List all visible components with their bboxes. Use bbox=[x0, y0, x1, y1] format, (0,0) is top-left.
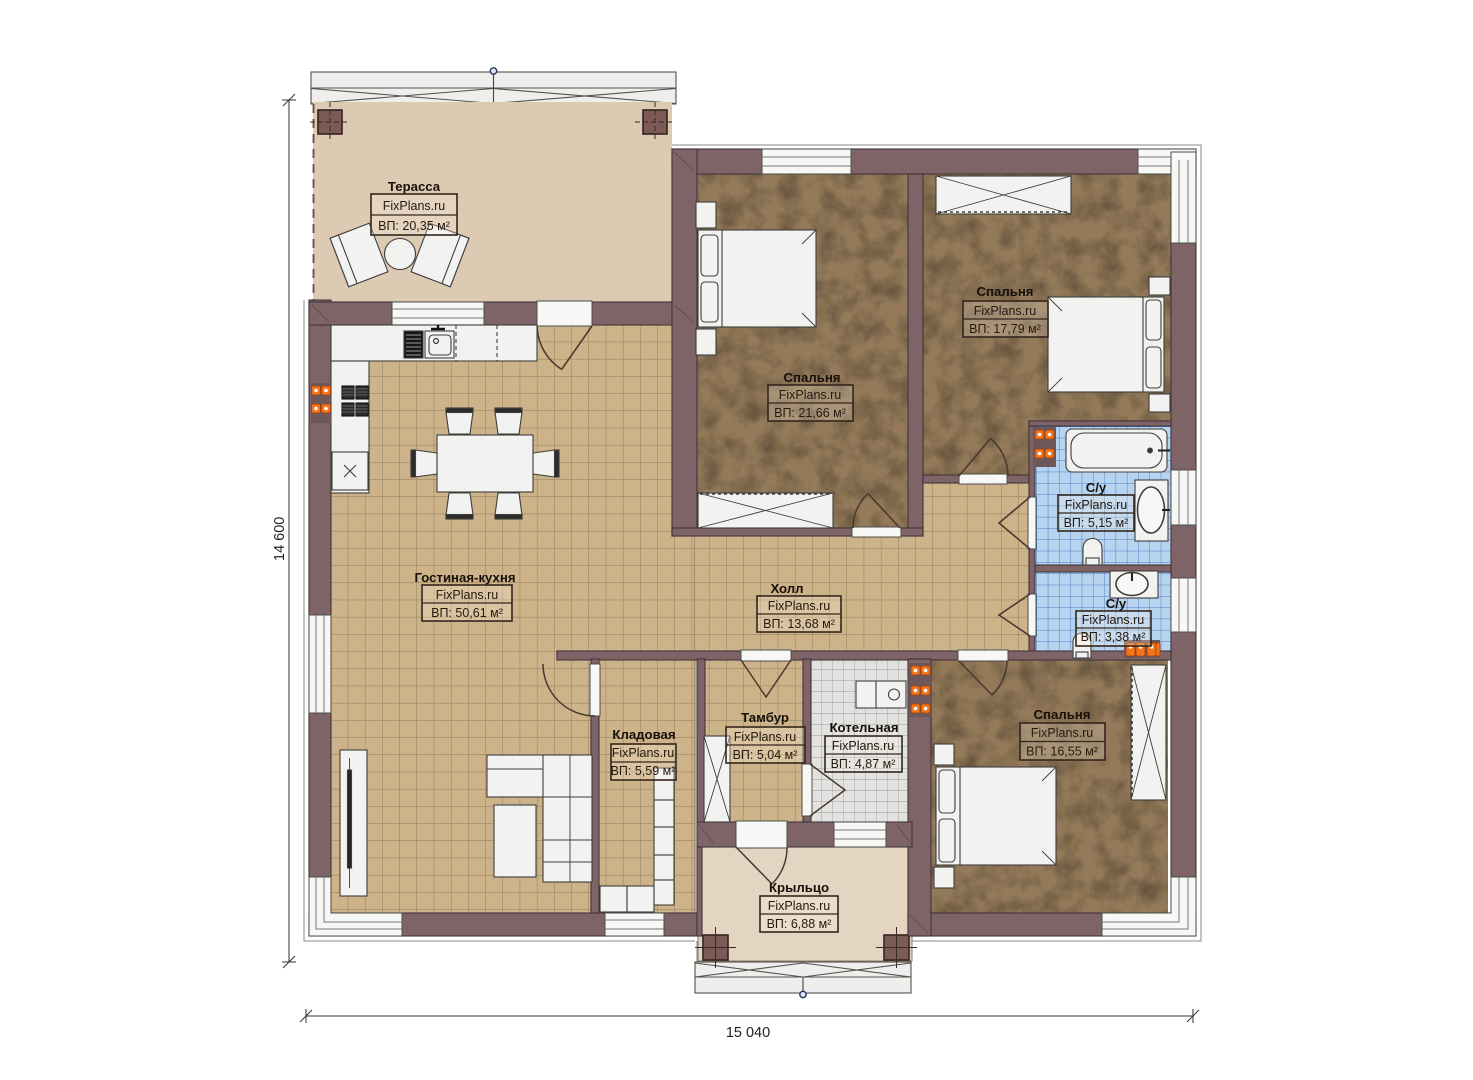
svg-text:15 040: 15 040 bbox=[726, 1025, 770, 1041]
svg-text:Крыльцо: Крыльцо bbox=[769, 880, 829, 895]
svg-text:Спальня: Спальня bbox=[784, 370, 841, 385]
svg-text:ВП: 13,68 м²: ВП: 13,68 м² bbox=[763, 617, 835, 631]
svg-text:Кладовая: Кладовая bbox=[612, 727, 675, 742]
svg-text:FixPlans.ru: FixPlans.ru bbox=[383, 199, 446, 213]
svg-text:ВП: 5,59 м²: ВП: 5,59 м² bbox=[611, 764, 676, 778]
svg-text:ВП: 4,87 м²: ВП: 4,87 м² bbox=[831, 757, 896, 771]
svg-text:ВП: 6,88 м²: ВП: 6,88 м² bbox=[767, 917, 832, 931]
svg-text:С/у: С/у bbox=[1086, 480, 1107, 495]
svg-text:FixPlans.ru: FixPlans.ru bbox=[612, 746, 675, 760]
svg-text:FixPlans.ru: FixPlans.ru bbox=[832, 739, 895, 753]
svg-text:FixPlans.ru: FixPlans.ru bbox=[768, 899, 831, 913]
svg-text:Холл: Холл bbox=[770, 581, 803, 596]
svg-text:ВП: 17,79 м²: ВП: 17,79 м² bbox=[969, 322, 1041, 336]
svg-text:ВП: 16,55 м²: ВП: 16,55 м² bbox=[1026, 745, 1098, 759]
svg-text:ВП: 3,38 м²: ВП: 3,38 м² bbox=[1081, 630, 1146, 644]
svg-text:Терасса: Терасса bbox=[388, 179, 441, 194]
svg-text:FixPlans.ru: FixPlans.ru bbox=[1031, 726, 1094, 740]
svg-text:ВП: 50,61 м²: ВП: 50,61 м² bbox=[431, 606, 503, 620]
svg-text:FixPlans.ru: FixPlans.ru bbox=[1065, 498, 1128, 512]
svg-text:14 600: 14 600 bbox=[272, 517, 288, 561]
svg-text:С/у: С/у bbox=[1106, 596, 1127, 611]
svg-text:FixPlans.ru: FixPlans.ru bbox=[734, 730, 797, 744]
svg-text:ВП: 20,35 м²: ВП: 20,35 м² bbox=[378, 219, 450, 233]
svg-text:FixPlans.ru: FixPlans.ru bbox=[974, 304, 1037, 318]
svg-text:ВП: 5,04 м²: ВП: 5,04 м² bbox=[733, 748, 798, 762]
svg-text:FixPlans.ru: FixPlans.ru bbox=[1082, 613, 1145, 627]
svg-text:FixPlans.ru: FixPlans.ru bbox=[768, 599, 831, 613]
svg-text:Котельная: Котельная bbox=[829, 720, 898, 735]
svg-text:Гостиная-кухня: Гостиная-кухня bbox=[414, 570, 515, 585]
svg-text:Спальня: Спальня bbox=[1034, 707, 1091, 722]
svg-text:ВП: 21,66 м²: ВП: 21,66 м² bbox=[774, 406, 846, 420]
svg-text:Спальня: Спальня bbox=[977, 284, 1034, 299]
svg-text:Тамбур: Тамбур bbox=[741, 710, 789, 725]
svg-text:FixPlans.ru: FixPlans.ru bbox=[779, 388, 842, 402]
svg-text:ВП: 5,15 м²: ВП: 5,15 м² bbox=[1064, 516, 1129, 530]
svg-text:FixPlans.ru: FixPlans.ru bbox=[436, 588, 499, 602]
